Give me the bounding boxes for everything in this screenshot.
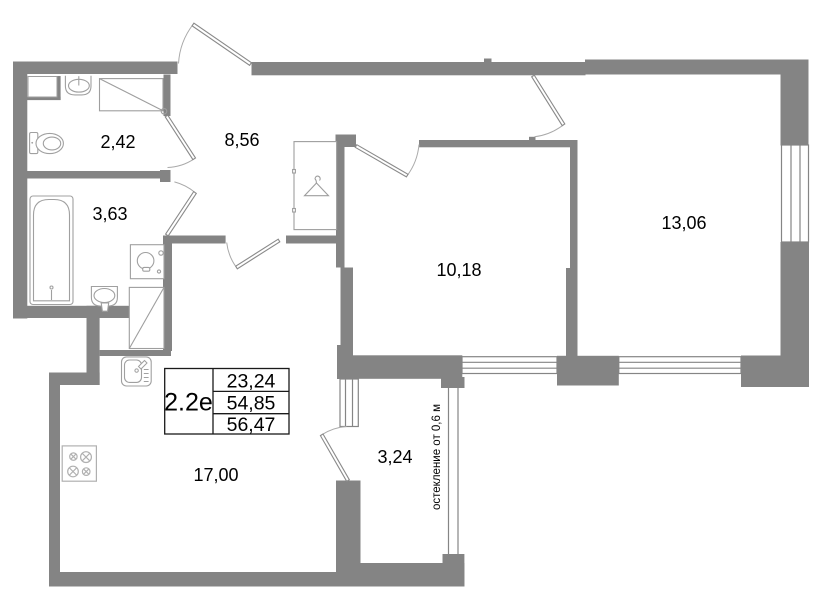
- svg-text:3,24: 3,24: [377, 447, 412, 467]
- svg-text:13,06: 13,06: [661, 213, 706, 233]
- svg-text:8,56: 8,56: [224, 130, 259, 150]
- svg-text:3,63: 3,63: [92, 204, 127, 224]
- svg-text:10,18: 10,18: [436, 260, 481, 280]
- svg-text:2,42: 2,42: [100, 132, 135, 152]
- svg-text:остекление от 0,6 м: остекление от 0,6 м: [431, 404, 443, 510]
- svg-text:2.2е: 2.2е: [164, 389, 213, 417]
- svg-text:54,85: 54,85: [227, 393, 276, 415]
- svg-text:17,00: 17,00: [193, 465, 238, 485]
- svg-text:56,47: 56,47: [227, 414, 276, 436]
- svg-text:23,24: 23,24: [227, 371, 276, 393]
